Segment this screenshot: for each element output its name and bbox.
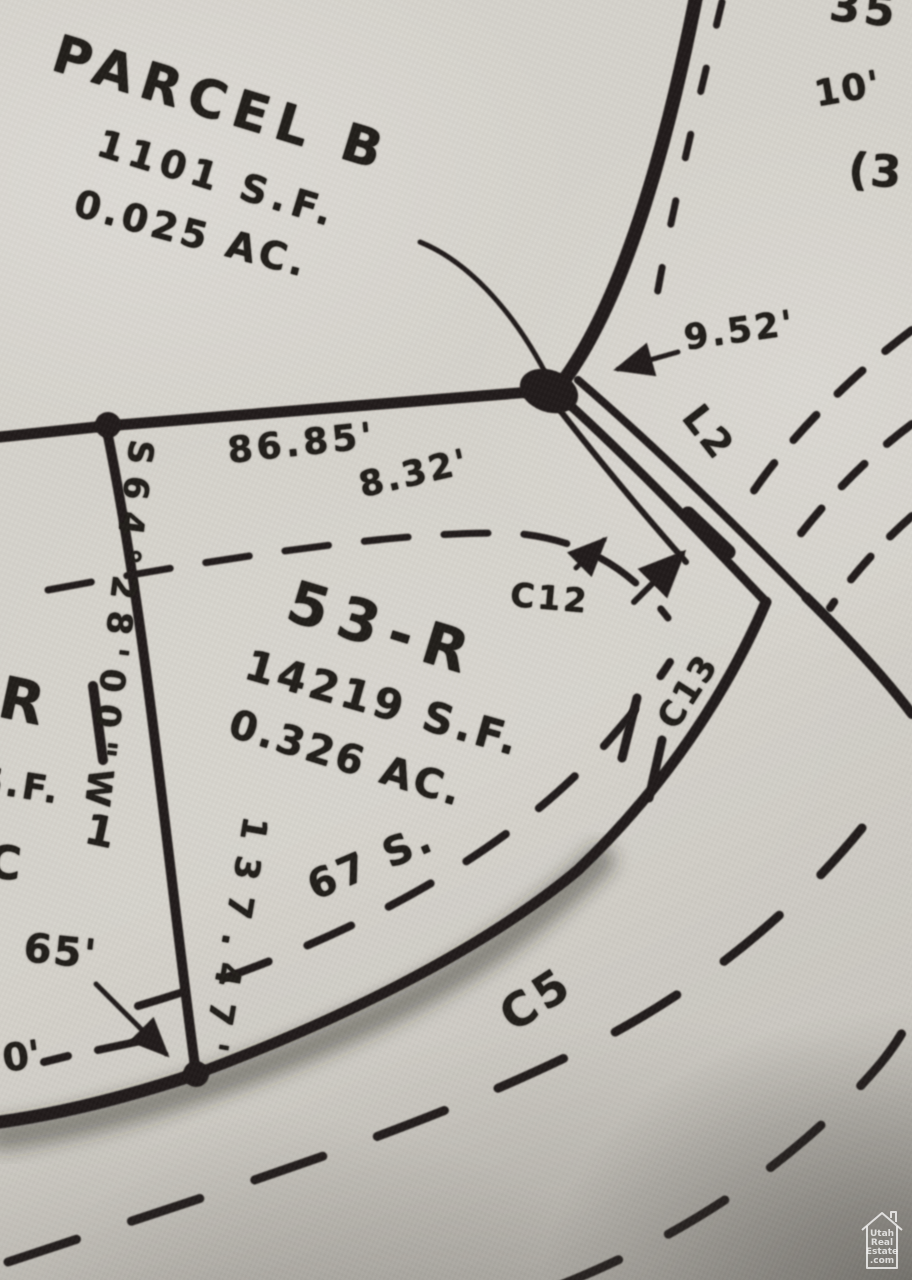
partial-label-r: R xyxy=(0,668,50,734)
utah-real-estate-watermark: Utah Real Estate .com xyxy=(858,1208,906,1274)
curve-label-l2: L2 xyxy=(676,398,742,468)
partial-label-sf: S.F. xyxy=(0,762,64,811)
curve-label-c5: C5 xyxy=(492,959,581,1039)
dimension-137-47: 137.47' xyxy=(194,814,272,1070)
plat-labels: PARCEL B 1101 S.F. 0.025 AC. 9.52' L2 86… xyxy=(0,0,912,1280)
watermark-text: Utah Real Estate .com xyxy=(858,1230,906,1266)
partial-label-paren3: (3 xyxy=(847,148,905,196)
bearing-west-boundary: S64°28'00"W xyxy=(78,438,158,820)
plat-photo: PARCEL B 1101 S.F. 0.025 AC. 9.52' L2 86… xyxy=(0,0,912,1280)
curve-label-c13: C13 xyxy=(652,648,725,735)
partial-label-zero: 0' xyxy=(0,1035,43,1078)
dimension-65: 65' xyxy=(22,928,100,976)
partial-label-35: 35 xyxy=(827,0,900,35)
dimension-10: 10' xyxy=(812,66,884,113)
partial-label-67s: 67 S. xyxy=(302,818,441,907)
dimension-86-85: 86.85' xyxy=(226,418,378,469)
curve-label-c12: C12 xyxy=(509,578,591,618)
watermark-line-com: .com xyxy=(858,1257,906,1266)
dimension-9-52: 9.52' xyxy=(682,306,798,356)
partial-label-c: C xyxy=(0,838,24,887)
